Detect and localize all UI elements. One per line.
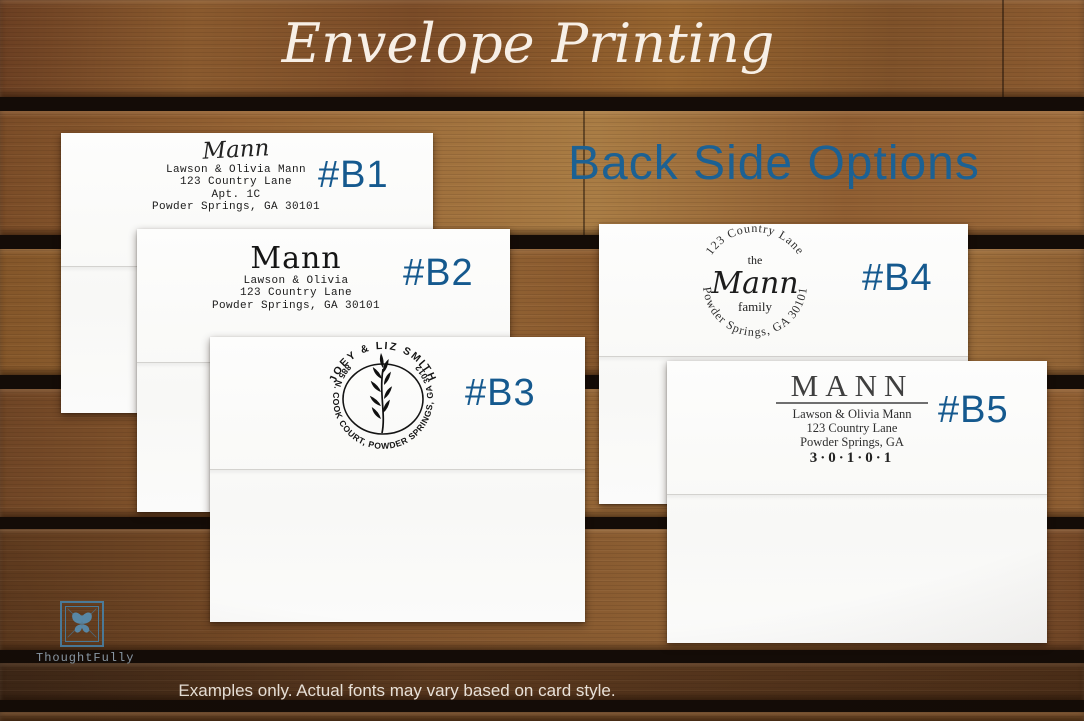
- address-line: Powder Springs, GA: [667, 435, 1037, 449]
- monogram-the: the: [748, 253, 763, 267]
- disclaimer-caption: Examples only. Actual fonts may vary bas…: [0, 680, 794, 702]
- monogram-name-script: Mann: [710, 266, 798, 301]
- envelope-flap-line: [667, 494, 1047, 495]
- address-line: Powder Springs, GA 30101: [137, 300, 455, 312]
- page-title: Envelope Printing: [0, 2, 1070, 86]
- botanical-address-stamp: JOEY & LIZ SMITH 1885 N. COOK COURT, POW…: [321, 337, 445, 461]
- product-graphic: Envelope Printing Back Side Options Mann…: [0, 0, 1084, 721]
- brand-logo: [60, 601, 104, 647]
- option-label-b5: #B5: [938, 390, 1009, 430]
- monogram-street-arc: 123 Country Lane: [702, 221, 807, 257]
- butterfly-icon: [66, 607, 98, 639]
- round-address-monogram: 123 Country Lane Powder Springs, GA 3010…: [689, 218, 821, 350]
- brand-name: ThoughtFully: [36, 651, 128, 666]
- envelope-flap-line: [599, 356, 968, 357]
- option-label-b2: #B2: [403, 253, 474, 293]
- envelope-sample-b5: MANN Lawson & Olivia Mann 123 Country La…: [667, 361, 1047, 643]
- address-line: Powder Springs, GA 30101: [61, 201, 411, 213]
- option-label-b4: #B4: [862, 258, 933, 298]
- zip-code-dotted: 3·0·1·0·1: [667, 450, 1037, 467]
- section-heading: Back Side Options: [568, 138, 980, 190]
- envelope-flap-line: [210, 469, 585, 470]
- svg-text:123 Country Lane: 123 Country Lane: [702, 221, 807, 257]
- wood-plank: [0, 712, 1084, 721]
- envelope-sample-b3: JOEY & LIZ SMITH 1885 N. COOK COURT, POW…: [210, 337, 585, 622]
- option-label-b3: #B3: [465, 373, 536, 413]
- option-label-b1: #B1: [318, 155, 389, 195]
- monogram-family: family: [738, 299, 772, 314]
